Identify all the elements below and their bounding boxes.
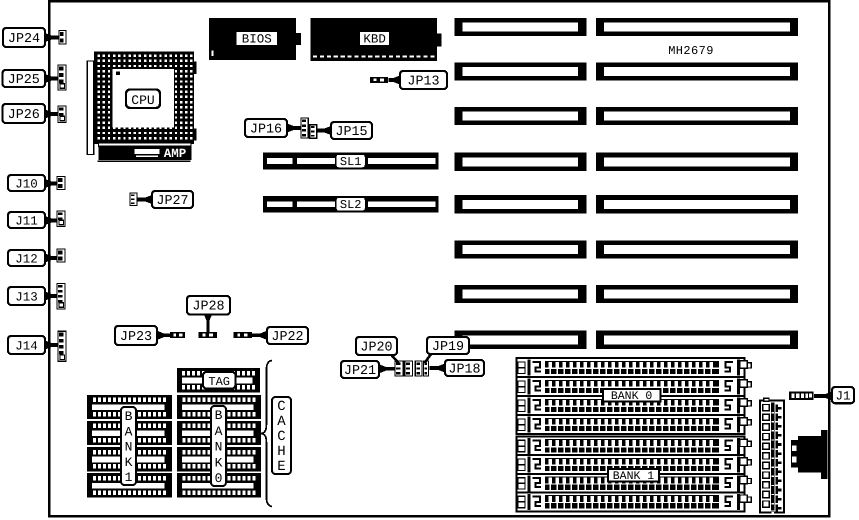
svg-text:1: 1 (125, 470, 133, 485)
svg-text:JP26: JP26 (8, 108, 40, 123)
svg-text:C: C (277, 399, 285, 415)
svg-text:AMP: AMP (164, 147, 187, 161)
svg-text:JP15: JP15 (335, 125, 367, 140)
svg-text:JP21: JP21 (344, 364, 376, 379)
svg-text:CPU: CPU (131, 93, 154, 108)
svg-text:A: A (215, 424, 223, 439)
svg-text:J1: J1 (835, 389, 850, 403)
svg-text:JP20: JP20 (360, 340, 392, 355)
svg-text:N: N (125, 440, 133, 455)
svg-text:E: E (277, 459, 285, 475)
svg-text:0: 0 (215, 471, 223, 486)
svg-text:H: H (277, 444, 285, 460)
svg-text:TAG: TAG (208, 375, 230, 389)
svg-text:B: B (125, 409, 133, 424)
svg-text:JP28: JP28 (192, 300, 224, 315)
svg-text:K: K (215, 455, 223, 470)
svg-text:B: B (215, 408, 223, 423)
svg-text:J14: J14 (15, 339, 38, 353)
svg-text:JP24: JP24 (8, 32, 40, 47)
svg-text:JP19: JP19 (432, 340, 464, 355)
svg-text:JP13: JP13 (407, 74, 439, 89)
svg-text:N: N (215, 440, 223, 455)
svg-text:JP25: JP25 (8, 73, 40, 88)
svg-text:A: A (277, 414, 286, 430)
svg-text:J13: J13 (15, 290, 38, 304)
svg-text:K: K (125, 455, 133, 470)
svg-text:JP23: JP23 (120, 330, 152, 345)
svg-text:J12: J12 (15, 252, 38, 266)
svg-text:JP18: JP18 (448, 362, 480, 377)
svg-text:BANK 1: BANK 1 (613, 470, 655, 483)
svg-text:JP16: JP16 (250, 122, 282, 137)
svg-text:J11: J11 (15, 214, 38, 228)
svg-text:JP22: JP22 (271, 330, 303, 345)
svg-text:MH2679: MH2679 (668, 44, 714, 58)
svg-text:BANK 0: BANK 0 (611, 390, 653, 403)
svg-text:C: C (277, 429, 285, 445)
svg-text:KBD: KBD (363, 33, 386, 47)
svg-text:A: A (125, 424, 133, 439)
svg-text:JP27: JP27 (156, 194, 188, 209)
svg-text:SL1: SL1 (340, 155, 362, 169)
svg-text:SL2: SL2 (340, 198, 362, 212)
svg-text:J10: J10 (15, 177, 38, 191)
svg-text:BIOS: BIOS (242, 33, 272, 47)
